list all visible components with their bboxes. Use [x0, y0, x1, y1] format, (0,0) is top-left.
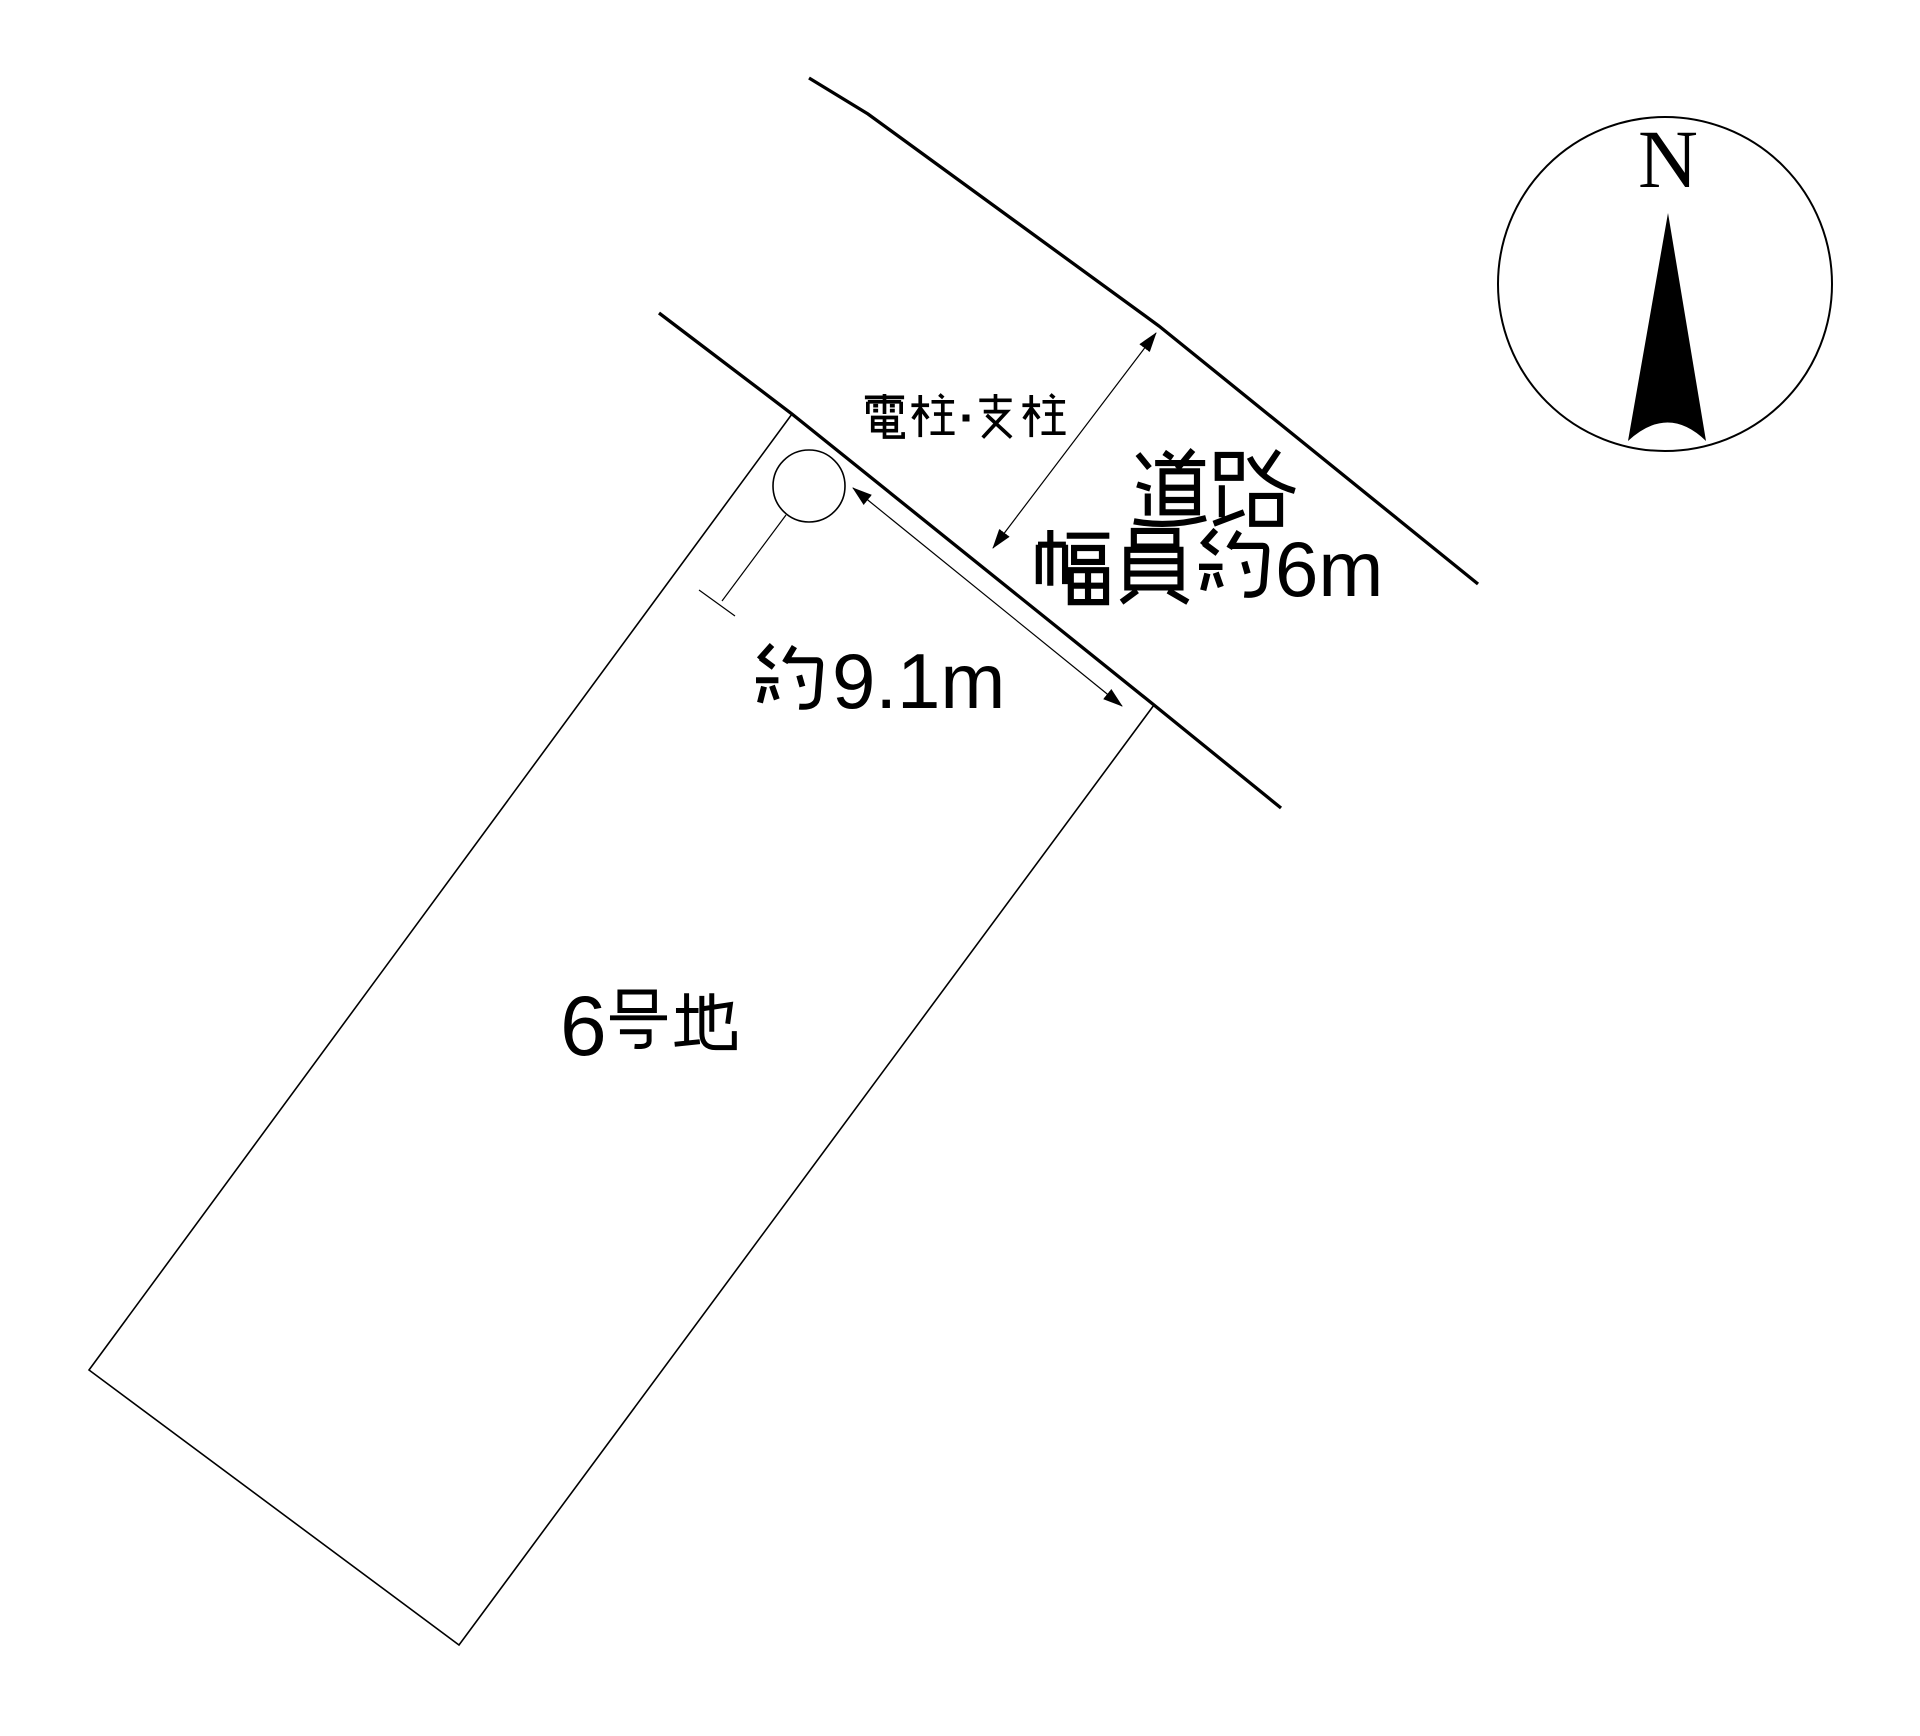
svg-text:9.1m: 9.1m: [832, 637, 1005, 725]
svg-text:6m: 6m: [1275, 525, 1383, 613]
svg-text:6: 6: [560, 979, 607, 1073]
svg-text:N: N: [1638, 113, 1698, 205]
